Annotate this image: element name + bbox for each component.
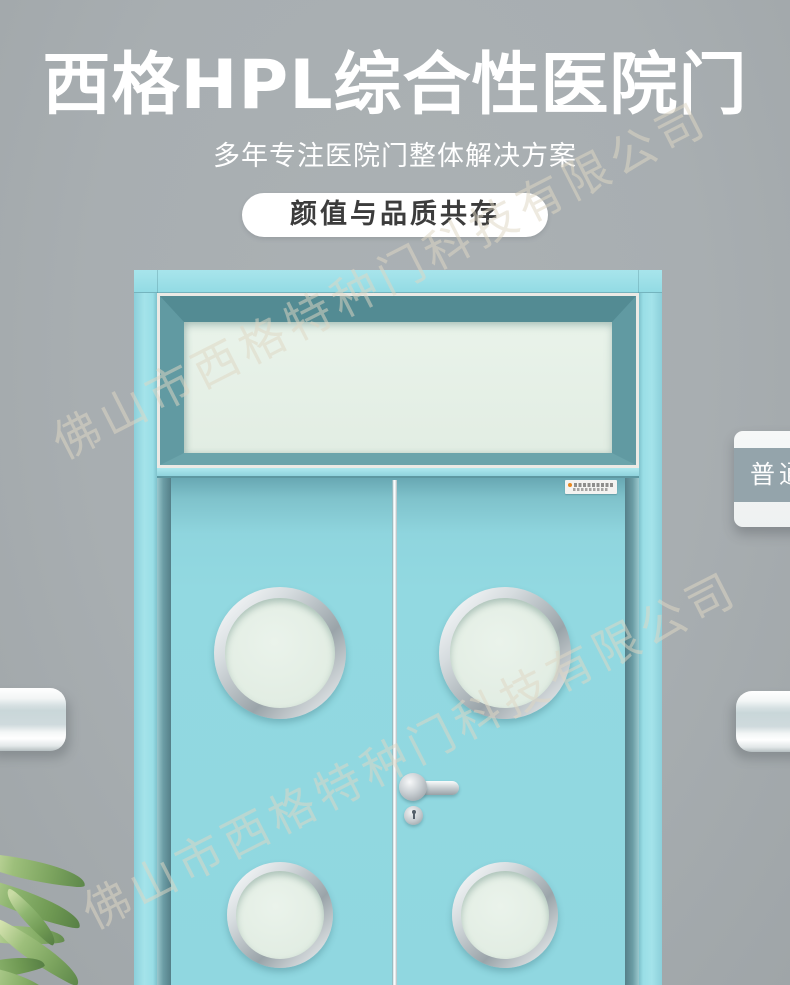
- hospital-door-illustration: [134, 270, 662, 985]
- plant-leaf: [0, 852, 87, 888]
- brand-logo-dot-icon: [568, 483, 572, 487]
- transom-window: [157, 293, 639, 468]
- room-sign-label: 普通: [750, 448, 790, 502]
- porthole-top-left: [214, 587, 346, 719]
- brand-label-text-bars: [573, 488, 609, 491]
- transom-sill: [157, 468, 639, 478]
- transom-glass: [184, 322, 612, 453]
- frame-seam: [638, 270, 639, 293]
- hero-banner: 西格HPL综合性医院门 多年专注医院门整体解决方案 颜值与品质共存: [0, 0, 790, 985]
- frame-seam: [157, 270, 158, 293]
- door-jamb-left: [134, 293, 157, 985]
- room-sign: 普通: [734, 431, 790, 527]
- porthole-bottom-right: [452, 862, 558, 968]
- brand-label-text-bars: [574, 483, 614, 487]
- page-title: 西格HPL综合性医院门: [0, 52, 790, 120]
- keyhole-escutcheon: [404, 806, 423, 825]
- porthole-top-right: [439, 587, 571, 719]
- page-subtitle: 多年专注医院门整体解决方案: [0, 142, 790, 172]
- transom-frame: [160, 296, 636, 465]
- door-handle-rose: [399, 773, 427, 801]
- door-reveal-left: [157, 478, 171, 985]
- door-reveal-right: [625, 478, 639, 985]
- wall-rail-right: [736, 691, 790, 752]
- double-door-leaves: [157, 478, 639, 985]
- door-jamb-right: [639, 293, 662, 985]
- porthole-bottom-left: [227, 862, 333, 968]
- porthole-glass: [450, 598, 560, 708]
- plant-leaves: [0, 842, 126, 985]
- wall-rail-left: [0, 688, 66, 751]
- porthole-glass: [236, 871, 324, 959]
- quality-badge: 颜值与品质共存: [242, 193, 548, 237]
- porthole-glass: [461, 871, 549, 959]
- room-sign-band: 普通: [734, 448, 790, 502]
- meeting-stile: [392, 480, 397, 985]
- keyhole-icon: [412, 810, 416, 814]
- brand-label-sticker: [565, 480, 617, 494]
- porthole-glass: [225, 598, 335, 708]
- door-head-frame: [134, 270, 662, 293]
- brand-label-row: [568, 482, 614, 487]
